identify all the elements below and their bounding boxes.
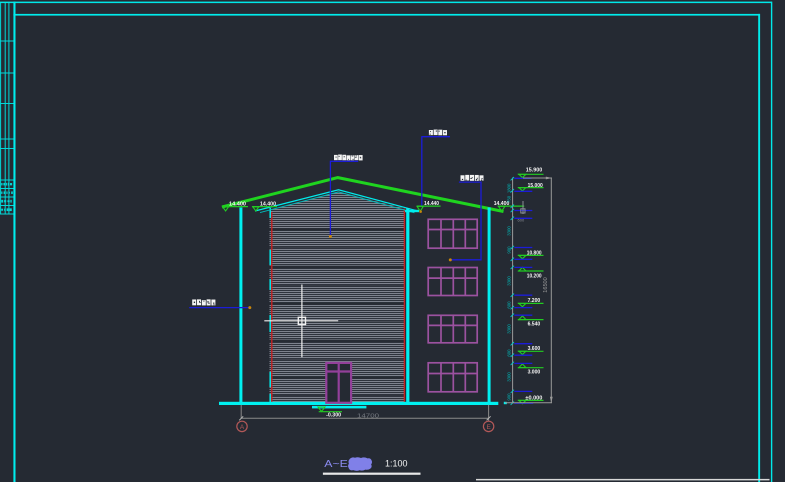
- svg-text:E: E: [486, 424, 490, 431]
- svg-text:15.000: 15.000: [528, 183, 543, 189]
- svg-text:1:100: 1:100: [385, 459, 408, 470]
- svg-text:1800: 1800: [506, 183, 511, 193]
- svg-text:3300: 3300: [506, 324, 511, 334]
- svg-text:600: 600: [518, 218, 525, 223]
- svg-text:10.200: 10.200: [527, 274, 542, 280]
- svg-text:3.000: 3.000: [528, 370, 541, 376]
- svg-text:3300: 3300: [506, 372, 511, 382]
- svg-text:600: 600: [506, 301, 511, 309]
- svg-text:3300: 3300: [506, 276, 511, 286]
- svg-text:14700: 14700: [357, 413, 379, 419]
- svg-text:-0.300: -0.300: [326, 413, 341, 419]
- svg-text:16500: 16500: [543, 277, 549, 293]
- svg-text:A: A: [240, 424, 245, 431]
- svg-text:900: 900: [506, 393, 511, 401]
- svg-text:A~E: A~E: [324, 458, 348, 470]
- svg-text:3300: 3300: [506, 226, 511, 236]
- svg-text:15.900: 15.900: [526, 168, 542, 174]
- svg-text:600: 600: [506, 349, 511, 357]
- svg-text:750: 750: [506, 195, 511, 203]
- svg-text:900: 900: [506, 246, 511, 254]
- svg-text:6.540: 6.540: [528, 322, 541, 328]
